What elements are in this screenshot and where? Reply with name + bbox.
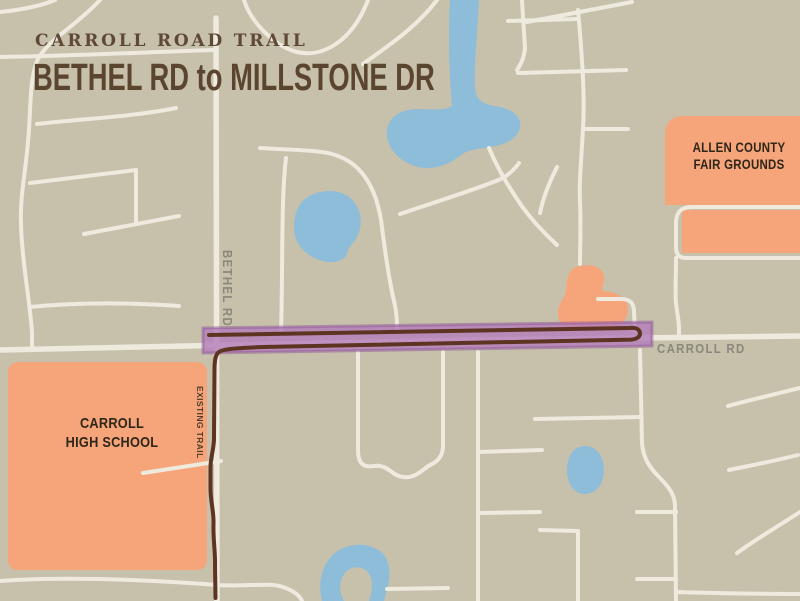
- pond-south-crescent: [320, 545, 389, 601]
- road: [540, 530, 578, 601]
- road: [676, 592, 800, 594]
- road: [535, 417, 641, 419]
- pond-east-small: [567, 446, 604, 494]
- school-label-line2: HIGH SCHOOL: [66, 433, 159, 450]
- road: [737, 512, 800, 553]
- map-eyebrow-title: CARROLL ROAD TRAIL: [35, 31, 308, 51]
- bethel-rd-label: BETHEL RD: [220, 250, 235, 327]
- road: [729, 455, 798, 470]
- bethel-road: [216, 18, 217, 601]
- road: [481, 512, 540, 513]
- road: [30, 170, 136, 183]
- carroll-rd-label: CARROLL RD: [657, 341, 746, 356]
- road: [489, 148, 557, 245]
- road: [0, 579, 302, 601]
- fairgrounds-label-line1: ALLEN COUNTY: [693, 140, 786, 155]
- road: [540, 167, 557, 213]
- fairgrounds-label: ALLEN COUNTY FAIR GROUNDS: [693, 140, 786, 172]
- fairgrounds-label-line2: FAIR GROUNDS: [694, 157, 785, 172]
- fairgrounds-area-south: [682, 210, 800, 253]
- existing-trail-label: EXISTING TRAIL: [195, 386, 205, 459]
- road: [387, 588, 448, 589]
- trail-map: BETHEL RD CARROLL RD EXISTING TRAIL CARR…: [0, 0, 800, 601]
- road: [578, 10, 584, 264]
- millstone-road: [640, 350, 676, 601]
- road: [728, 388, 800, 406]
- pond-middle: [294, 191, 361, 262]
- road: [676, 258, 679, 338]
- road: [281, 158, 286, 334]
- road: [517, 0, 525, 70]
- road: [518, 70, 626, 73]
- road: [37, 108, 176, 124]
- school-label-line1: CARROLL: [80, 414, 144, 431]
- road: [358, 352, 443, 477]
- page-title: BETHEL RD to MILLSTONE DR: [33, 57, 435, 100]
- road: [478, 450, 542, 452]
- road: [84, 216, 179, 234]
- road: [30, 304, 179, 308]
- road: [0, 50, 214, 57]
- road: [0, 0, 55, 12]
- road: [363, 0, 437, 64]
